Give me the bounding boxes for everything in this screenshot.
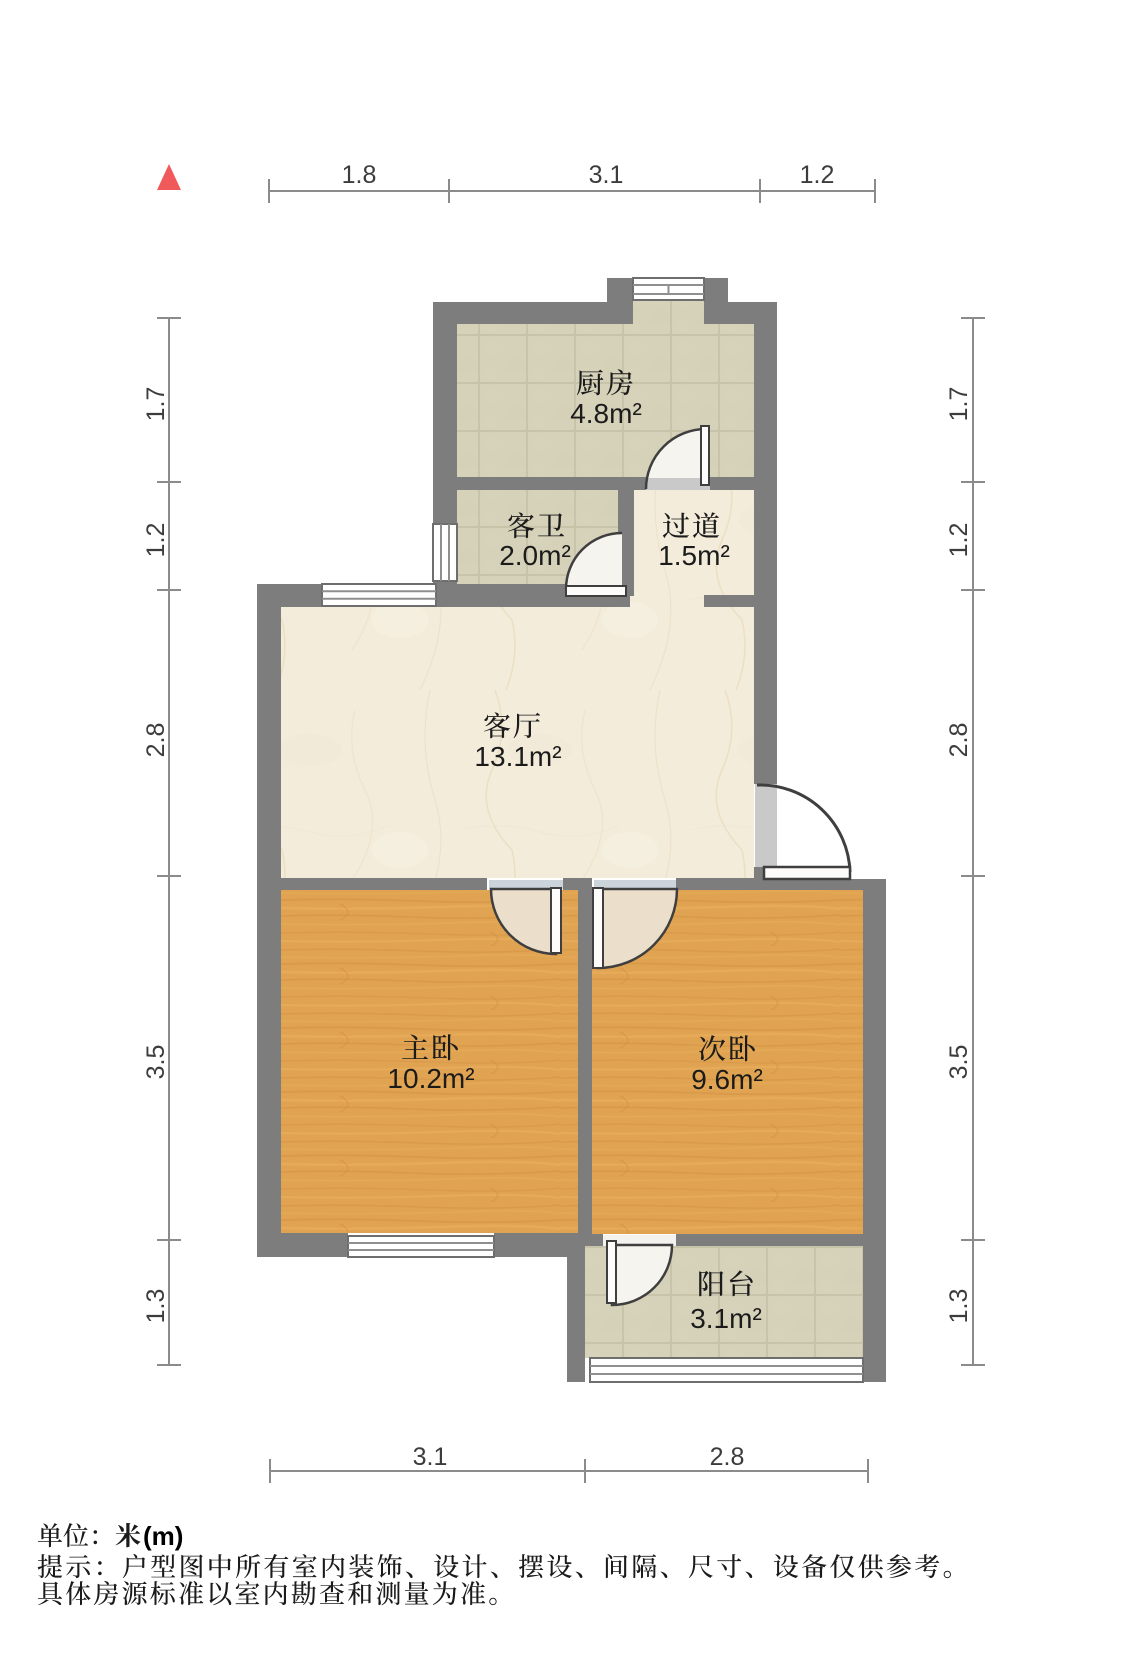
svg-text:1.2: 1.2 [142, 523, 170, 558]
svg-text:1.8: 1.8 [342, 161, 377, 189]
svg-text:10.2m²: 10.2m² [387, 1063, 474, 1094]
svg-text:9.6m²: 9.6m² [691, 1064, 763, 1095]
svg-text:2.8: 2.8 [945, 723, 973, 758]
svg-text:2.8: 2.8 [710, 1443, 745, 1471]
svg-text:1.7: 1.7 [945, 387, 973, 422]
svg-text:13.1m²: 13.1m² [474, 741, 561, 772]
svg-text:2.8: 2.8 [142, 723, 170, 758]
svg-text:3.1: 3.1 [589, 161, 624, 189]
svg-text:1.2: 1.2 [945, 523, 973, 558]
svg-text:1.7: 1.7 [142, 387, 170, 422]
svg-text:3.1m²: 3.1m² [690, 1303, 762, 1334]
svg-text:(m): (m) [143, 1521, 183, 1551]
svg-text:1.2: 1.2 [800, 161, 835, 189]
svg-text:3.1: 3.1 [413, 1443, 448, 1471]
svg-text:4.8m²: 4.8m² [570, 398, 642, 429]
svg-text:3.5: 3.5 [945, 1045, 973, 1080]
svg-text:1.3: 1.3 [142, 1289, 170, 1324]
svg-text:3.5: 3.5 [142, 1045, 170, 1080]
svg-text:1.5m²: 1.5m² [658, 540, 730, 571]
svg-text:2.0m²: 2.0m² [499, 540, 571, 571]
svg-text:1.3: 1.3 [945, 1289, 973, 1324]
